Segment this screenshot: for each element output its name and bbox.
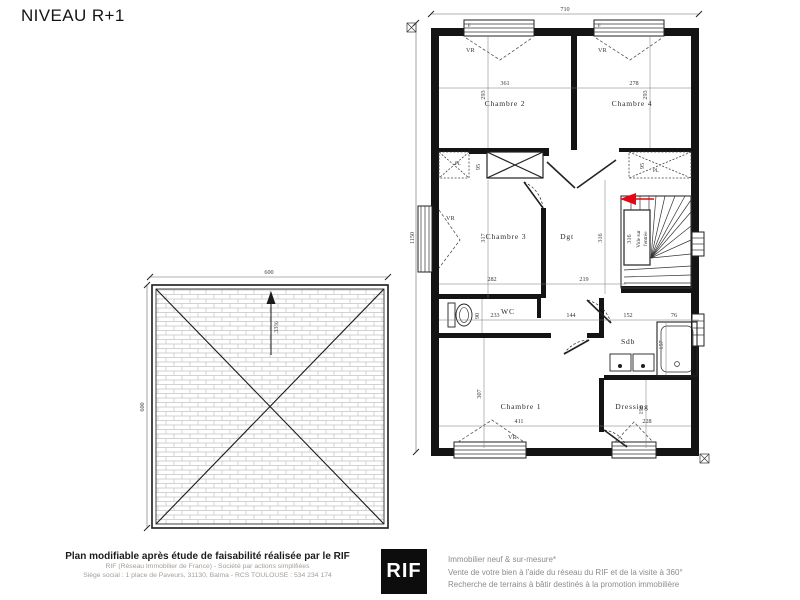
dim-roof-height: 600: [139, 402, 146, 411]
closet-label-left: PL: [455, 162, 461, 167]
dim-stairwell: 316: [626, 234, 633, 243]
dim-chambre1-w: 411: [514, 418, 523, 425]
closet-label-right: PL: [653, 169, 659, 174]
dim-sdb-h: 157: [658, 340, 665, 349]
dim-closet-right: 95: [639, 163, 646, 169]
dim-roof-width: 600: [264, 269, 273, 276]
slope-label: 33%: [273, 321, 280, 332]
double-sink: [610, 354, 654, 371]
dim-total-height: 1150: [409, 232, 416, 244]
dim-wc-w: 233: [490, 312, 499, 319]
room-label-chambre2: Chambre 2: [485, 99, 526, 108]
window-mark-1: F: [468, 24, 471, 29]
dim-chambre3-h: 317: [480, 233, 487, 242]
dim-wc-h: 90: [474, 313, 481, 319]
page-title: NIVEAU R+1: [21, 6, 125, 26]
footer-address-line: Siège social : 1 place de Paveurs, 31130…: [55, 572, 360, 581]
dim-chambre4-h: 293: [642, 90, 649, 99]
overall-dimensions: [407, 11, 709, 463]
dim-dgt-h: 316: [597, 233, 604, 242]
dim-chambre2-h: 293: [480, 90, 487, 99]
dim-chambre3-w: 282: [487, 276, 496, 283]
dim-dgt-w: 219: [579, 276, 588, 283]
toilet: [448, 303, 472, 327]
footer-service-1: Immobilier neuf & sur-mesure*: [448, 554, 683, 567]
dim-hall-w: 144: [566, 312, 575, 319]
room-label-wc: WC: [501, 307, 515, 316]
shutter-label-2: VR: [598, 47, 607, 54]
floor-plan-drawing: 710 1150 PL PL 95 95: [404, 0, 716, 470]
dim-dressing-w: 228: [642, 418, 651, 425]
rif-logo: RIF: [381, 549, 427, 594]
dim-closet-left: 95: [475, 164, 482, 170]
footer-company-line: RIF (Réseau Immobilier de France) - Soci…: [55, 563, 360, 572]
roof-plan-drawing: 600 600 33%: [130, 258, 402, 543]
dim-chambre1-h: 307: [476, 389, 483, 398]
footer-disclaimer: Plan modifiable après étude de faisabili…: [55, 551, 360, 580]
dim-total-width: 710: [560, 6, 569, 13]
dim-dressing-h: 196: [638, 405, 645, 414]
window-mark-2: F: [598, 24, 601, 29]
footer-disclaimer-bold: Plan modifiable après étude de faisabili…: [55, 551, 360, 563]
dim-bath-w: 76: [671, 312, 677, 319]
dim-chambre4-w: 278: [629, 80, 638, 87]
footer-service-2: Vente de votre bien à l'aide du réseau d…: [448, 567, 683, 580]
footer-service-3: Recherche de terrains à bâtir destinés à…: [448, 579, 683, 592]
room-label-sdb: Sdb: [621, 337, 635, 346]
shutter-label-4: VR: [508, 434, 517, 441]
stairwell-void-label-2: l'entrée: [643, 231, 649, 247]
room-label-chambre3: Chambre 3: [486, 232, 527, 241]
shutter-label-1: VR: [466, 47, 475, 54]
dim-sdb-w: 152: [623, 312, 632, 319]
stairwell-void-label-1: Vide sur: [636, 230, 642, 248]
room-label-chambre1: Chambre 1: [501, 402, 542, 411]
dim-chambre2-w: 361: [500, 80, 509, 87]
footer-services: Immobilier neuf & sur-mesure* Vente de v…: [448, 554, 683, 592]
room-label-dgt: Dgt: [560, 232, 574, 241]
shutter-label-3: VR: [446, 215, 455, 222]
exterior-walls: [431, 28, 699, 456]
